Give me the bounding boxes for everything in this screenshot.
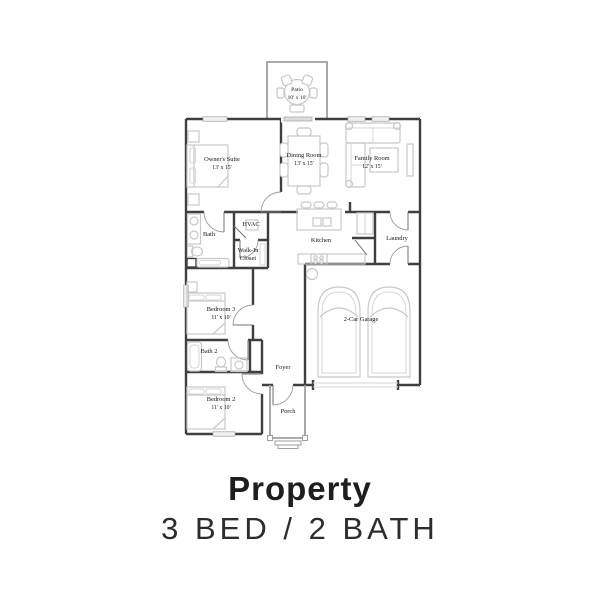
bath-door [204, 212, 224, 232]
foyer-label: Foyer [276, 364, 292, 371]
tub [197, 259, 229, 268]
patio-label: Patio [291, 87, 303, 93]
bedroom3-dims: 11' x 10' [211, 315, 230, 321]
closet-shelving [260, 244, 265, 265]
nightstand [188, 131, 199, 142]
sliding-door [284, 117, 312, 121]
refrigerator [357, 213, 373, 234]
plan-caption: Property 3 BED / 2 BATH [0, 470, 600, 547]
family-room-dims: 12' x 15' [362, 164, 381, 170]
bath-label: Bath [203, 231, 216, 238]
owners-suite-label: Owner's Suite [204, 156, 240, 163]
laundry-label: Laundry [386, 235, 408, 242]
linen-cabinet [187, 259, 196, 268]
island [297, 202, 341, 230]
toilet [216, 357, 227, 372]
bedroom2-dims: 11' x 10' [211, 405, 230, 411]
garage-door [313, 383, 398, 387]
garage-label: 2-Car Garage [344, 316, 379, 323]
hvac-label: HVAC [242, 221, 259, 228]
laundry-hall-door [390, 212, 408, 230]
porch-step [278, 445, 298, 449]
owners-suite-door [261, 192, 281, 212]
bath2-door [228, 340, 248, 360]
bed [187, 293, 225, 334]
pantry-door [355, 240, 367, 255]
bedroom2-label: Bedroom 2 [207, 396, 236, 403]
bedroom3-label: Bedroom 3 [207, 306, 236, 313]
bath-fixtures [187, 214, 229, 267]
floor-plan-page: Patio 10' x 10' Owner's Suite 13' x 15' … [0, 0, 600, 600]
media-console [407, 144, 413, 176]
laundry-garage-door [390, 246, 408, 264]
walk-in-closet-label2: Closet [240, 255, 257, 262]
bedroom3-door [233, 305, 253, 325]
patio-table-set [277, 75, 317, 112]
toilet [188, 246, 203, 257]
bath2-fixtures [188, 342, 248, 372]
dining-room-dims: 13' x 15' [294, 161, 313, 167]
counter-stove [298, 254, 365, 264]
car [368, 287, 410, 377]
garage-contents [307, 269, 411, 388]
bath2-label: Bath 2 [201, 348, 218, 355]
dining-room-label: Dining Room [287, 152, 322, 159]
water-heater [307, 269, 318, 280]
bedroom2-door [242, 374, 262, 394]
porch-label: Porch [281, 408, 297, 415]
owners-suite-dims: 13' x 15' [212, 165, 231, 171]
plan-title: Property [0, 470, 600, 508]
kitchen-label: Kitchen [311, 237, 332, 244]
car [318, 287, 360, 377]
walk-in-closet-label: Walk-In [238, 247, 260, 254]
front-door [273, 385, 293, 405]
nightstand [188, 194, 199, 205]
porch-step [275, 441, 301, 445]
patio-dims: 10' x 10' [287, 95, 306, 101]
plan-subtitle: 3 BED / 2 BATH [0, 511, 600, 547]
tub [188, 342, 202, 371]
family-room-label: Family Room [354, 155, 389, 162]
